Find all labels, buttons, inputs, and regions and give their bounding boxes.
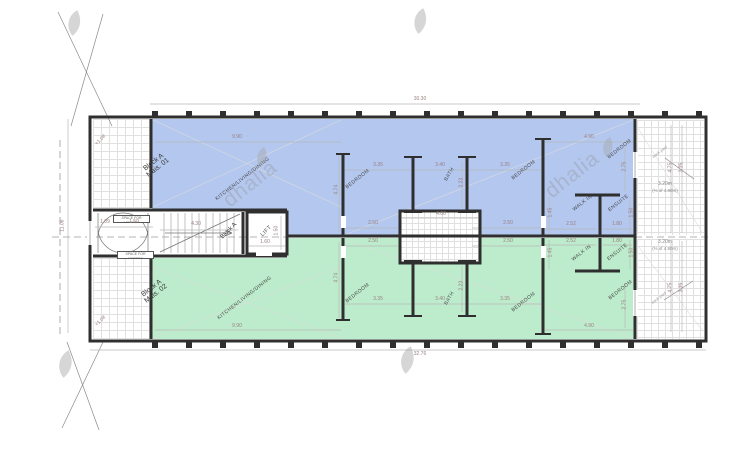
dim-bath-w-2: 3.40 [425,297,455,302]
floor-plan-canvas: Block A Mais. 01 Block A Mais. 02 KITCHE… [0,0,750,450]
dim-bedback-4: 2.50 [493,239,523,244]
dim-kitchen-w-1: 9.90 [222,135,252,140]
dim-bedback-3: 2.50 [358,239,388,244]
watermark-leaf-icon-3 [249,145,271,169]
dim-bed2-w-1: 3.35 [490,163,520,168]
watermark-leaf-icon-4 [595,135,617,159]
dim-ensuite-w-1: 1.80 [602,222,632,227]
dim-kitchen-w-2: 9.90 [222,324,252,329]
dim-yard-b-1: 3.35 [679,155,684,181]
dim-yard-a-1: 4.75 [668,155,673,181]
dim-walkin-w-1: 2.52 [556,222,586,227]
dim-ensuite-d-2: 1.50 [629,240,634,266]
dim-bed2-w-2: 3.35 [490,297,520,302]
dim-bed3-w-2: 4.90 [574,324,604,329]
top-wall-ticks [152,111,704,117]
yard-note-bottom-l2: (⅔ of 4.80m) [637,247,693,252]
dim-bed3-h-1: 2.75 [622,152,627,182]
dim-shaft-w: 4.00 [426,212,456,217]
dim-hall-a: 1.09 [92,220,118,225]
dim-walkin-w-2: 2.52 [556,239,586,244]
watermark-leaf-icon-1 [58,8,86,38]
dim-bath-w-1: 3.40 [425,163,455,168]
dim-bedback-1: 2.50 [358,221,388,226]
dim-overall-left: 11.08 [60,206,65,246]
dim-bed3-h-2: 2.75 [622,290,627,320]
dim-bedback-2: 2.50 [493,221,523,226]
dim-ensuite-w-2: 1.80 [602,239,632,244]
bottom-wall-ticks [152,342,704,348]
watermark-leaf-icon-2 [404,6,432,36]
watermark-leaf-icon-5 [48,348,78,380]
dim-yard-a-2: 4.75 [668,275,673,301]
dim-room-d-2: 4.74 [334,263,339,293]
watermark-leaf-icon-6 [390,344,420,376]
dim-lift-d: 1.50 [274,218,279,244]
yard-note-bottom-l1: 3.20m [645,240,685,245]
dim-hall-b: 1.50 [121,220,147,225]
dim-bath-d-2: 2.23 [459,271,464,301]
dim-bath-d-1: 2.23 [459,168,464,198]
dim-stair-w: 4.30 [183,222,209,227]
dim-walkin-d-2: 1.45 [548,240,553,266]
dim-yard-b-2: 3.35 [679,275,684,301]
dim-bed1-w-1: 3.35 [363,163,393,168]
dim-ensuite-d-1: 1.50 [629,200,634,226]
yard-note-top-l1: 3.20m [645,182,685,187]
dim-bed1-w-2: 3.35 [363,297,393,302]
dim-room-d-1: 4.74 [334,175,339,205]
dim-overall-top: 30.30 [400,97,440,102]
yard-note-top-l2: (⅔ of 4.80m) [637,189,693,194]
meters-box-2: SPACE FOR METERS [117,251,154,259]
